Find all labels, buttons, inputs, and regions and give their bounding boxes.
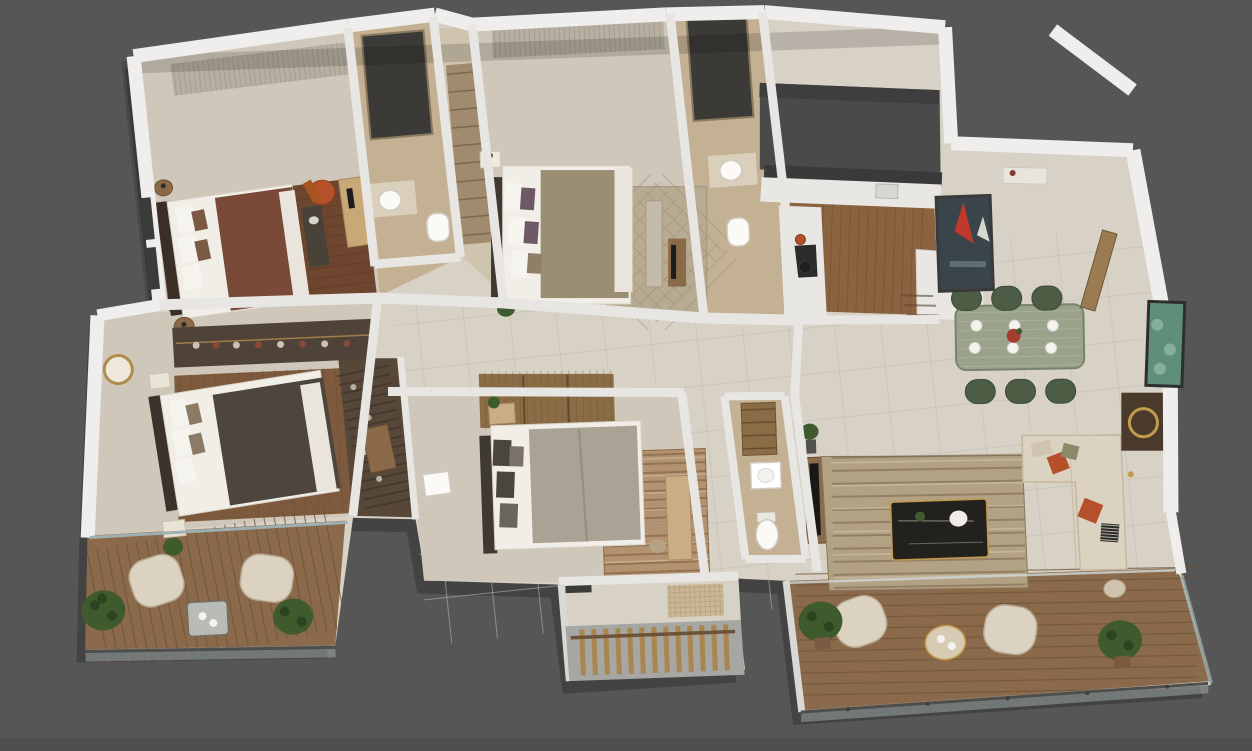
kitchen-pot — [795, 234, 806, 245]
bath1-toilet — [426, 213, 450, 242]
bed2-blanket-fold — [614, 168, 632, 292]
floorplan-render — [0, 0, 1252, 751]
bed4-pillow-1 — [493, 440, 512, 467]
bed4-desk — [665, 475, 692, 560]
bath2-toilet — [727, 217, 750, 246]
page: { "canvas": { "width": 1252, "height": 7… — [0, 0, 1252, 751]
dining-chair-2 — [991, 286, 1021, 311]
dining-chair-4 — [965, 379, 995, 404]
floorplan-canvas — [0, 0, 1252, 751]
balcony-left-table — [187, 601, 229, 637]
dining-chair-6 — [1045, 379, 1075, 404]
dining-plates-dot — [970, 320, 982, 332]
wall-detached-ne — [1053, 22, 1133, 97]
bed2-bench — [646, 201, 662, 287]
balcony-left-chair-2 — [238, 552, 296, 605]
bed2-pillow-3 — [511, 250, 531, 277]
balcony-right-pot-2 — [1114, 655, 1131, 669]
tv-plant-stand — [806, 439, 816, 453]
painting-sailboat-sea — [950, 260, 986, 268]
dining-plates-dot — [1047, 320, 1059, 332]
bed2-accent-pillow-2 — [523, 221, 539, 244]
closet-vanity-sink — [423, 471, 452, 496]
dining-plates-dot — [1007, 342, 1019, 354]
bottom-shade-strip — [0, 738, 1252, 751]
bed2-accent-pillow-1 — [520, 187, 536, 210]
plan-group — [13, 0, 1226, 751]
kitchen-sink — [876, 184, 898, 199]
balcony-right-pot-1 — [814, 637, 831, 651]
dining-chair-3 — [1032, 286, 1062, 311]
bath3-toilet — [756, 519, 779, 550]
bed2-accent-pillow-3 — [527, 253, 542, 274]
dining-plates-dot — [1045, 342, 1057, 354]
bed4-pillow-4 — [509, 446, 524, 466]
entry-console — [1003, 167, 1047, 184]
bed3-wall-clock — [103, 354, 134, 385]
painting-teal-frame — [1146, 301, 1185, 386]
bed2-tv — [671, 245, 676, 279]
bed2-dresser — [668, 239, 686, 287]
bed3-side-table-s — [162, 519, 186, 537]
bed4-pillow-2 — [496, 471, 515, 498]
bed4-pillow-3 — [499, 503, 518, 528]
dining-plates-dot — [969, 342, 981, 354]
dining-chair-5 — [1005, 379, 1035, 404]
bath2-shower — [687, 15, 754, 121]
coffee-table — [891, 499, 989, 560]
bed3-side-table-n — [149, 372, 170, 389]
